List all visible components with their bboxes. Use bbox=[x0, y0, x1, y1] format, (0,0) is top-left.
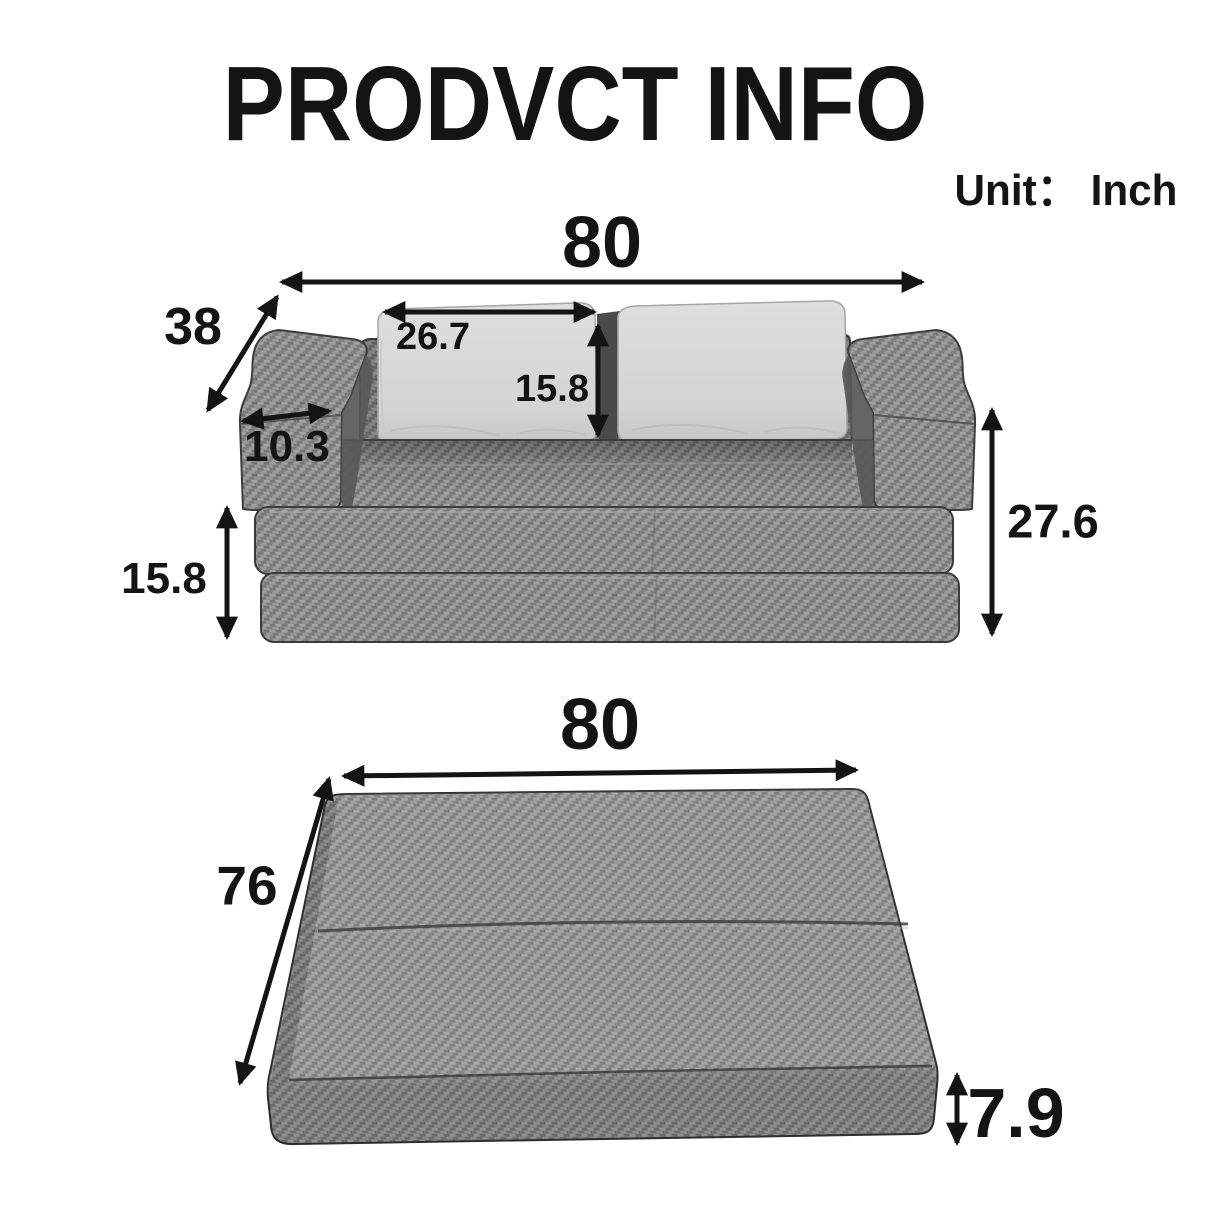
page-title: PRODVCT INFO bbox=[223, 51, 928, 157]
mattress-illustration bbox=[268, 789, 938, 1144]
base-slab-middle bbox=[255, 507, 953, 574]
right-armrest bbox=[842, 330, 975, 510]
dim-label-mattress-thickness: 7.9 bbox=[967, 1078, 1064, 1148]
dim-arrow-mattress-width bbox=[344, 770, 856, 776]
right-pillow bbox=[618, 301, 847, 442]
dim-label-mattress-depth: 76 bbox=[216, 859, 277, 914]
product-info-diagram: PRODVCT INFO Unit： Inch 80 38 26.7 15.8 … bbox=[0, 0, 1214, 1214]
dim-label-base-stack-height: 15.8 bbox=[121, 557, 207, 601]
dim-label-mattress-width: 80 bbox=[560, 689, 640, 761]
dim-label-sofa-width: 80 bbox=[562, 207, 642, 279]
sofa-illustration bbox=[240, 301, 975, 642]
sofa-seat bbox=[262, 440, 950, 508]
unit-label: Unit： Inch bbox=[955, 169, 1178, 213]
dim-label-armrest-width: 10.3 bbox=[244, 425, 330, 469]
mattress-top-face bbox=[289, 789, 935, 1086]
dim-label-total-height: 27.6 bbox=[1007, 498, 1098, 545]
dim-label-pillow-width: 26.7 bbox=[396, 318, 470, 356]
dim-label-pillow-height: 15.8 bbox=[515, 370, 589, 408]
base-slab-bottom bbox=[261, 573, 959, 642]
dim-label-sofa-depth: 38 bbox=[164, 301, 222, 353]
